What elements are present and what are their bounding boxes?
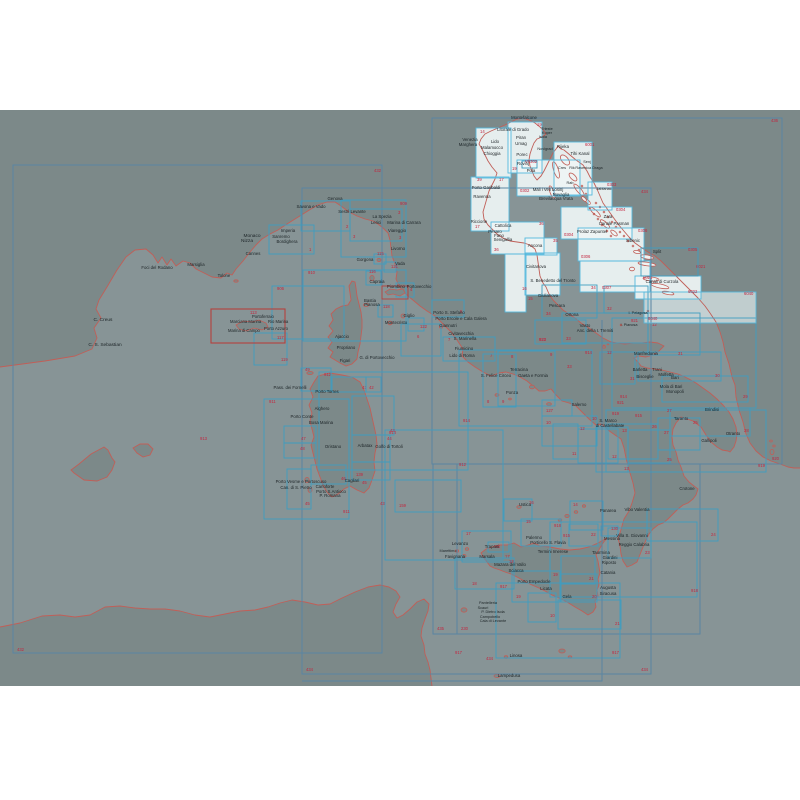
svg-text:Brindisi: Brindisi xyxy=(705,407,719,412)
svg-text:921: 921 xyxy=(617,400,625,405)
svg-text:Nizza: Nizza xyxy=(241,238,253,244)
svg-text:Alghero: Alghero xyxy=(315,406,330,411)
svg-text:Panarea: Panarea xyxy=(600,508,617,513)
svg-text:Terracina: Terracina xyxy=(510,367,528,372)
svg-text:915: 915 xyxy=(635,413,643,418)
svg-text:Linosa: Linosa xyxy=(510,653,523,658)
svg-text:Porto Empedocle: Porto Empedocle xyxy=(518,579,552,584)
svg-text:31: 31 xyxy=(630,376,635,381)
svg-text:14: 14 xyxy=(480,129,485,134)
svg-text:Pesaro: Pesaro xyxy=(488,229,502,234)
svg-text:C. S. Sebastian: C. S. Sebastian xyxy=(88,342,122,348)
svg-text:0305: 0305 xyxy=(688,247,698,252)
svg-text:Vada: Vada xyxy=(395,261,405,266)
svg-text:909: 909 xyxy=(400,201,408,206)
svg-text:915: 915 xyxy=(563,533,571,538)
svg-text:Porticello S. Flavia: Porticello S. Flavia xyxy=(530,540,566,545)
svg-text:33: 33 xyxy=(566,336,571,341)
svg-text:912: 912 xyxy=(324,372,332,377)
svg-text:910: 910 xyxy=(308,270,316,275)
svg-text:27: 27 xyxy=(667,408,672,413)
svg-text:432: 432 xyxy=(17,647,25,652)
svg-text:Marsala: Marsala xyxy=(479,554,495,559)
svg-text:Giulianova: Giulianova xyxy=(538,293,559,298)
svg-text:Giannutri: Giannutri xyxy=(439,323,456,328)
svg-text:Mola di Bari: Mola di Bari xyxy=(660,384,683,389)
svg-text:Split: Split xyxy=(653,249,662,254)
svg-text:117: 117 xyxy=(277,335,284,340)
svg-text:Cattolica: Cattolica xyxy=(495,223,512,228)
svg-text:Marettimo: Marettimo xyxy=(440,549,457,553)
svg-text:Marsiglia: Marsiglia xyxy=(187,262,205,267)
svg-text:432: 432 xyxy=(374,168,382,173)
svg-text:Bosa Marina: Bosa Marina xyxy=(309,420,334,425)
svg-text:435: 435 xyxy=(437,626,445,631)
svg-text:I. Pelagosa: I. Pelagosa xyxy=(629,311,649,315)
svg-text:45: 45 xyxy=(362,480,367,485)
svg-text:S. Felice Circeo: S. Felice Circeo xyxy=(481,373,512,378)
svg-text:Rab: Rab xyxy=(567,181,574,185)
svg-text:Isola: Isola xyxy=(539,135,548,139)
svg-text:Oristano: Oristano xyxy=(325,444,342,449)
svg-text:116: 116 xyxy=(369,269,376,274)
svg-text:6022: 6022 xyxy=(688,289,698,294)
svg-text:434: 434 xyxy=(641,189,649,194)
svg-text:12: 12 xyxy=(580,426,585,431)
svg-text:Civitanova: Civitanova xyxy=(526,264,547,269)
svg-text:Montecristo: Montecristo xyxy=(385,320,408,325)
svg-text:26: 26 xyxy=(652,424,657,429)
svg-text:Bordighera: Bordighera xyxy=(276,239,298,244)
svg-text:31: 31 xyxy=(678,351,683,356)
svg-text:6040: 6040 xyxy=(744,291,754,296)
svg-text:Lampedusa: Lampedusa xyxy=(498,673,521,678)
svg-text:Imperia: Imperia xyxy=(281,228,296,233)
svg-text:Rijeka: Rijeka xyxy=(557,144,570,149)
svg-text:42: 42 xyxy=(369,385,374,390)
svg-text:0306: 0306 xyxy=(638,228,648,233)
svg-text:49: 49 xyxy=(305,367,310,372)
svg-text:434: 434 xyxy=(641,667,649,672)
svg-text:10: 10 xyxy=(550,613,555,618)
svg-text:10: 10 xyxy=(592,416,597,421)
svg-text:23: 23 xyxy=(645,550,650,555)
svg-text:17: 17 xyxy=(475,224,480,229)
svg-text:19: 19 xyxy=(512,166,517,171)
svg-text:6001: 6001 xyxy=(585,142,595,147)
svg-text:127: 127 xyxy=(546,408,554,413)
svg-text:Porto Torres: Porto Torres xyxy=(315,389,338,394)
svg-text:P. Dietro Isola: P. Dietro Isola xyxy=(481,610,505,614)
svg-text:Pola: Pola xyxy=(527,168,536,173)
svg-text:12: 12 xyxy=(607,350,612,355)
svg-text:48: 48 xyxy=(300,446,305,451)
svg-text:10: 10 xyxy=(546,420,551,425)
svg-text:S. Benedetto del Tronto: S. Benedetto del Tronto xyxy=(530,278,576,283)
svg-text:Piombino: Piombino xyxy=(387,284,406,289)
svg-text:Gela: Gela xyxy=(562,594,572,599)
svg-text:39: 39 xyxy=(477,177,482,182)
svg-text:434: 434 xyxy=(486,656,494,661)
svg-text:S. Marinella: S. Marinella xyxy=(454,336,477,341)
svg-text:43: 43 xyxy=(390,428,395,433)
svg-text:Ravenica Draga: Ravenica Draga xyxy=(575,166,603,170)
svg-text:41: 41 xyxy=(362,385,367,390)
svg-text:923: 923 xyxy=(539,337,547,342)
svg-text:Trapani: Trapani xyxy=(485,544,499,549)
svg-text:Vibo Valentia: Vibo Valentia xyxy=(625,507,651,512)
svg-text:14: 14 xyxy=(573,502,578,507)
svg-text:Portovecchio: Portovecchio xyxy=(407,284,432,289)
svg-text:15: 15 xyxy=(528,296,533,301)
svg-text:Livorno: Livorno xyxy=(391,246,406,251)
svg-text:Porto Garibaldi: Porto Garibaldi xyxy=(472,185,501,190)
svg-text:Pass. dei Fornelli: Pass. dei Fornelli xyxy=(274,385,307,390)
svg-text:Arbatax: Arbatax xyxy=(358,443,374,448)
svg-text:Lido di Roma: Lido di Roma xyxy=(449,353,475,358)
svg-text:Marghera: Marghera xyxy=(459,142,478,147)
svg-text:Cres: Cres xyxy=(558,166,566,170)
svg-text:Jablanac: Jablanac xyxy=(596,187,611,191)
svg-text:113: 113 xyxy=(250,310,257,315)
svg-text:Ancona: Ancona xyxy=(528,243,543,248)
svg-text:Cagliari: Cagliari xyxy=(345,478,360,483)
svg-text:Levanzo: Levanzo xyxy=(452,541,469,546)
svg-text:Cannes: Cannes xyxy=(246,251,261,256)
svg-text:28: 28 xyxy=(744,428,749,433)
svg-text:Siracusa: Siracusa xyxy=(600,591,617,596)
svg-text:Salerno: Salerno xyxy=(572,402,587,407)
svg-text:Tihi Kanal: Tihi Kanal xyxy=(571,151,590,156)
svg-text:Golfo di Tortoli: Golfo di Tortoli xyxy=(375,444,402,449)
svg-text:Porto Ercole e Cala Galera: Porto Ercole e Cala Galera xyxy=(435,316,487,321)
svg-text:I. Pianosa: I. Pianosa xyxy=(621,323,639,327)
svg-text:436: 436 xyxy=(771,118,779,123)
svg-text:913: 913 xyxy=(200,436,208,441)
svg-text:34: 34 xyxy=(591,285,596,290)
svg-text:912: 912 xyxy=(459,462,467,467)
svg-text:159: 159 xyxy=(399,503,407,508)
svg-text:G. di Portovecchio: G. di Portovecchio xyxy=(359,355,395,360)
svg-text:12: 12 xyxy=(612,454,617,459)
svg-text:914: 914 xyxy=(585,350,593,355)
svg-text:27: 27 xyxy=(664,430,669,435)
svg-text:0307: 0307 xyxy=(602,285,612,290)
svg-text:914: 914 xyxy=(463,418,471,423)
svg-text:45: 45 xyxy=(305,501,310,506)
svg-text:43: 43 xyxy=(380,501,385,506)
svg-text:21: 21 xyxy=(615,621,620,626)
svg-text:906: 906 xyxy=(277,286,285,291)
svg-text:Ustica: Ustica xyxy=(519,502,532,507)
svg-text:0302: 0302 xyxy=(520,188,530,193)
svg-text:0306: 0306 xyxy=(581,254,591,259)
svg-text:Propriano: Propriano xyxy=(337,345,356,350)
svg-text:Licata: Licata xyxy=(540,586,552,591)
svg-text:Lido: Lido xyxy=(491,139,500,144)
svg-text:Pianosa: Pianosa xyxy=(364,302,380,307)
svg-text:18: 18 xyxy=(472,581,477,586)
svg-text:Tolone: Tolone xyxy=(218,273,231,278)
svg-text:25: 25 xyxy=(667,457,672,462)
svg-text:917: 917 xyxy=(612,650,620,655)
svg-text:Ajaccio: Ajaccio xyxy=(335,334,349,339)
svg-text:911: 911 xyxy=(269,399,276,404)
svg-text:917: 917 xyxy=(455,650,463,655)
svg-text:Canali di Curzola: Canali di Curzola xyxy=(646,279,679,284)
svg-text:La Spezia: La Spezia xyxy=(372,214,392,219)
svg-text:911: 911 xyxy=(343,509,350,514)
svg-text:Marina di Campo: Marina di Campo xyxy=(228,328,261,333)
svg-text:918: 918 xyxy=(691,588,699,593)
svg-text:Trani: Trani xyxy=(652,367,662,372)
svg-text:Mazara del Vallo: Mazara del Vallo xyxy=(494,562,526,567)
svg-text:Reggio Calabria: Reggio Calabria xyxy=(619,542,650,547)
svg-text:Foci del Rodano: Foci del Rodano xyxy=(141,265,173,270)
svg-text:Riccione: Riccione xyxy=(471,219,488,224)
svg-text:Villa S. Giovanni: Villa S. Giovanni xyxy=(616,533,647,538)
svg-text:Capraia: Capraia xyxy=(369,279,385,284)
svg-text:Malamocco: Malamocco xyxy=(481,145,504,150)
svg-text:16: 16 xyxy=(522,286,527,291)
svg-text:Fiumicino: Fiumicino xyxy=(455,346,474,351)
svg-text:6021: 6021 xyxy=(696,264,706,269)
svg-text:C. Creus: C. Creus xyxy=(94,317,114,323)
svg-text:15: 15 xyxy=(526,519,531,524)
svg-text:Umag: Umag xyxy=(515,141,527,146)
svg-text:17: 17 xyxy=(466,531,471,536)
svg-text:Augusta: Augusta xyxy=(600,585,616,590)
svg-text:Savona e Vado: Savona e Vado xyxy=(296,204,326,209)
svg-text:Porec: Porec xyxy=(516,152,528,157)
svg-text:Figari: Figari xyxy=(340,358,351,363)
svg-text:Taranto: Taranto xyxy=(674,416,689,421)
svg-text:36: 36 xyxy=(494,247,499,252)
svg-text:19: 19 xyxy=(516,594,521,599)
svg-text:914: 914 xyxy=(620,394,628,399)
svg-text:Zara: Zara xyxy=(604,214,613,219)
svg-text:Porto Conte: Porto Conte xyxy=(291,414,315,419)
svg-text:Rik: Rik xyxy=(569,166,575,170)
svg-text:434: 434 xyxy=(306,667,314,672)
svg-text:P. Romana: P. Romana xyxy=(320,493,342,498)
svg-text:139: 139 xyxy=(356,472,364,477)
svg-text:Canale Pasman: Canale Pasman xyxy=(599,221,630,226)
svg-text:118: 118 xyxy=(383,304,390,309)
svg-text:Gaeta e Formia: Gaeta e Formia xyxy=(518,373,548,378)
svg-text:19: 19 xyxy=(553,572,558,577)
svg-text:Bisceglie: Bisceglie xyxy=(636,374,654,379)
svg-text:Termini Imerese: Termini Imerese xyxy=(538,549,569,554)
svg-text:36: 36 xyxy=(539,221,544,226)
svg-text:Molfetta: Molfetta xyxy=(658,372,674,377)
svg-text:Gallipoli: Gallipoli xyxy=(701,438,716,443)
svg-text:di Castellabate: di Castellabate xyxy=(596,423,625,428)
svg-text:919: 919 xyxy=(758,463,766,468)
svg-text:Otranto: Otranto xyxy=(726,431,741,436)
svg-text:21: 21 xyxy=(589,576,594,581)
svg-text:Can. di S. Pietro: Can. di S. Pietro xyxy=(280,485,312,490)
svg-text:Riposto: Riposto xyxy=(602,560,617,565)
svg-text:Marciana Marina: Marciana Marina xyxy=(230,319,262,324)
svg-text:Ponza: Ponza xyxy=(506,390,519,395)
svg-text:Manfredonia: Manfredonia xyxy=(634,351,658,356)
svg-text:Marina di Carrara: Marina di Carrara xyxy=(387,220,421,225)
svg-text:Lerici: Lerici xyxy=(371,220,381,225)
svg-text:25: 25 xyxy=(693,420,698,425)
svg-text:20: 20 xyxy=(592,594,597,599)
svg-text:30: 30 xyxy=(715,373,720,378)
svg-text:920: 920 xyxy=(772,456,780,461)
svg-text:Litorale di Grado: Litorale di Grado xyxy=(497,127,529,132)
svg-text:Rovinj: Rovinj xyxy=(517,161,529,166)
svg-text:Sciacca: Sciacca xyxy=(508,568,524,573)
svg-text:35: 35 xyxy=(553,238,558,243)
svg-text:Sibenic: Sibenic xyxy=(626,238,641,243)
svg-text:Giglio: Giglio xyxy=(404,313,416,318)
svg-text:Chioggia: Chioggia xyxy=(484,151,502,156)
svg-text:918: 918 xyxy=(554,523,562,528)
svg-text:119: 119 xyxy=(281,357,288,362)
svg-text:Genova: Genova xyxy=(327,196,343,201)
svg-text:Piran: Piran xyxy=(516,135,527,140)
svg-text:Ravenna: Ravenna xyxy=(473,194,491,199)
svg-text:917: 917 xyxy=(500,584,508,589)
svg-text:Favignana: Favignana xyxy=(445,554,466,559)
svg-text:Pescara: Pescara xyxy=(549,303,565,308)
svg-text:Cala di Levante: Cala di Levante xyxy=(480,619,506,623)
svg-text:33: 33 xyxy=(567,364,572,369)
svg-text:Viareggio: Viareggio xyxy=(388,228,407,233)
svg-text:Barletta: Barletta xyxy=(633,367,648,372)
svg-text:Sestri Levante: Sestri Levante xyxy=(338,209,366,214)
svg-text:22: 22 xyxy=(591,532,596,537)
svg-text:230: 230 xyxy=(461,626,469,631)
svg-text:Pantelleria: Pantelleria xyxy=(479,601,498,605)
svg-text:44: 44 xyxy=(387,436,392,441)
svg-text:115: 115 xyxy=(377,251,384,256)
svg-text:Catania: Catania xyxy=(601,570,616,575)
svg-text:Porto S. Stefano: Porto S. Stefano xyxy=(433,310,465,315)
svg-text:Ortona: Ortona xyxy=(565,312,579,317)
svg-text:Novigrad: Novigrad xyxy=(537,147,552,151)
svg-text:24: 24 xyxy=(711,532,716,537)
svg-text:29: 29 xyxy=(743,394,748,399)
svg-text:0304: 0304 xyxy=(564,232,574,237)
svg-text:Anc. della I. Tremiti: Anc. della I. Tremiti xyxy=(577,328,614,333)
svg-text:Rio Marina: Rio Marina xyxy=(268,319,289,324)
svg-text:Brevilacqua Vrata: Brevilacqua Vrata xyxy=(539,196,573,201)
svg-text:11: 11 xyxy=(572,451,577,456)
svg-text:Porto Azzuro: Porto Azzuro xyxy=(264,326,289,331)
svg-text:13: 13 xyxy=(622,428,627,433)
svg-text:Montefalcone: Montefalcone xyxy=(511,115,537,120)
svg-text:47: 47 xyxy=(301,436,306,441)
svg-text:130: 130 xyxy=(611,526,619,531)
svg-text:919: 919 xyxy=(612,411,620,416)
svg-text:Crotone: Crotone xyxy=(679,486,695,491)
svg-text:Gorgona: Gorgona xyxy=(357,257,374,262)
svg-text:13: 13 xyxy=(624,466,629,471)
svg-text:6040: 6040 xyxy=(648,316,658,321)
svg-text:32: 32 xyxy=(607,306,612,311)
svg-text:Prolaz Zapuntel: Prolaz Zapuntel xyxy=(577,229,607,234)
svg-text:0304: 0304 xyxy=(616,207,626,212)
svg-text:17: 17 xyxy=(499,177,504,182)
svg-text:34: 34 xyxy=(546,311,551,316)
svg-text:122: 122 xyxy=(420,324,428,329)
svg-text:Monopoli: Monopoli xyxy=(666,389,683,394)
svg-text:Senj: Senj xyxy=(583,160,591,164)
